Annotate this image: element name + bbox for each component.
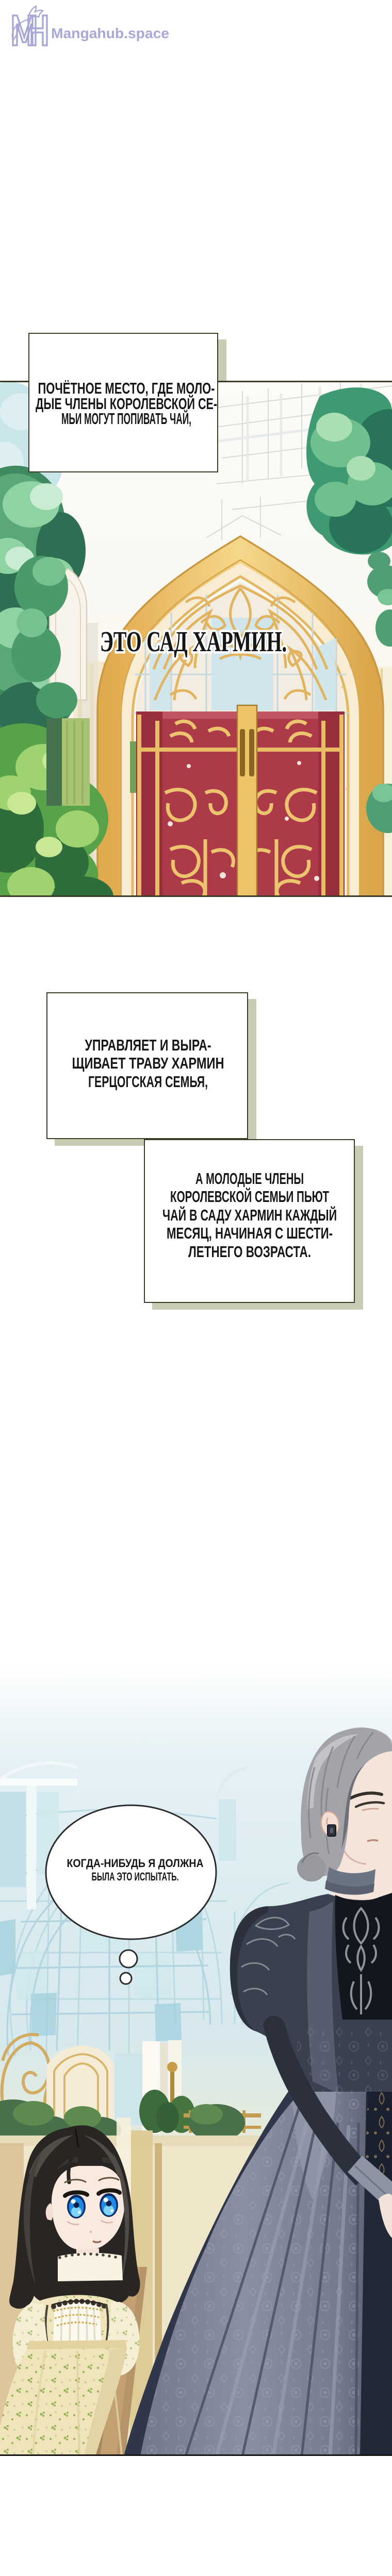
svg-text:КОРОЛЕВСКОЙ СЕМЬИ ПЬЮТ: КОРОЛЕВСКОЙ СЕМЬИ ПЬЮТ [170, 1187, 329, 1206]
svg-text:КОГДА-НИБУДЬ Я ДОЛЖНА: КОГДА-НИБУДЬ Я ДОЛЖНА [67, 1857, 204, 1870]
svg-text:МЬИ МОГУТ ПОПИВАТЬ ЧАЙ,: МЬИ МОГУТ ПОПИВАТЬ ЧАЙ, [61, 409, 191, 428]
svg-text:ЛЕТНЕГО ВОЗРАСТА.: ЛЕТНЕГО ВОЗРАСТА. [188, 1243, 311, 1261]
svg-text:УПРАВЛЯЕТ И ВЫРА-: УПРАВЛЯЕТ И ВЫРА- [85, 1036, 211, 1054]
svg-text:ЭТО САД ХАРМИН.: ЭТО САД ХАРМИН. [100, 626, 287, 658]
svg-text:БЫЛА ЭТО ИСПЫТАТЬ.: БЫЛА ЭТО ИСПЫТАТЬ. [92, 1870, 179, 1883]
svg-text:ЧАЙ В САДУ ХАРМИН КАЖДЫЙ: ЧАЙ В САДУ ХАРМИН КАЖДЫЙ [162, 1206, 337, 1224]
svg-text:ЩИВАЕТ ТРАВУ ХАРМИН: ЩИВАЕТ ТРАВУ ХАРМИН [72, 1054, 224, 1072]
svg-text:МЕСЯЦ, НАЧИНАЯ С ШЕСТИ-: МЕСЯЦ, НАЧИНАЯ С ШЕСТИ- [167, 1224, 333, 1242]
svg-text:А МОЛОДЫЕ ЧЛЕНЫ: А МОЛОДЫЕ ЧЛЕНЫ [195, 1170, 304, 1188]
svg-text:ГЕРЦОГСКАЯ СЕМЬЯ,: ГЕРЦОГСКАЯ СЕМЬЯ, [88, 1073, 208, 1091]
